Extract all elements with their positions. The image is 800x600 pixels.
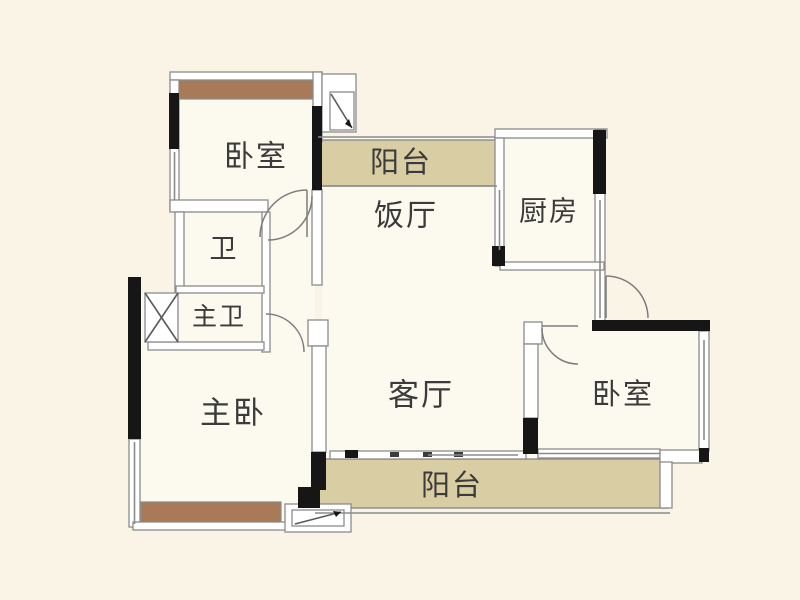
bay-window-bottom xyxy=(141,502,281,522)
floor-plan-canvas: 卧室 阳台 饭厅 厨房 卫 主卫 主卧 客厅 卧室 阳台 xyxy=(0,0,800,600)
room-label-balcony-top: 阳台 xyxy=(370,146,432,179)
room-label-bedroom-right: 卧室 xyxy=(592,378,654,411)
room-label-balcony-bottom: 阳台 xyxy=(421,469,483,502)
room-label-master-bedroom: 主卧 xyxy=(200,396,266,431)
room-label-dining: 饭厅 xyxy=(374,200,438,233)
room-label-master-bath: 主卫 xyxy=(192,303,246,331)
room-label-living: 客厅 xyxy=(388,378,454,413)
room-label-kitchen: 厨房 xyxy=(519,196,579,227)
room-label-bedroom-top: 卧室 xyxy=(224,141,288,174)
room-label-bath: 卫 xyxy=(210,234,239,264)
bay-window-top xyxy=(179,80,315,99)
balcony-bottom-area xyxy=(318,459,668,508)
floor-plan: 卧室 阳台 饭厅 厨房 卫 主卫 主卧 客厅 卧室 阳台 xyxy=(0,0,800,600)
